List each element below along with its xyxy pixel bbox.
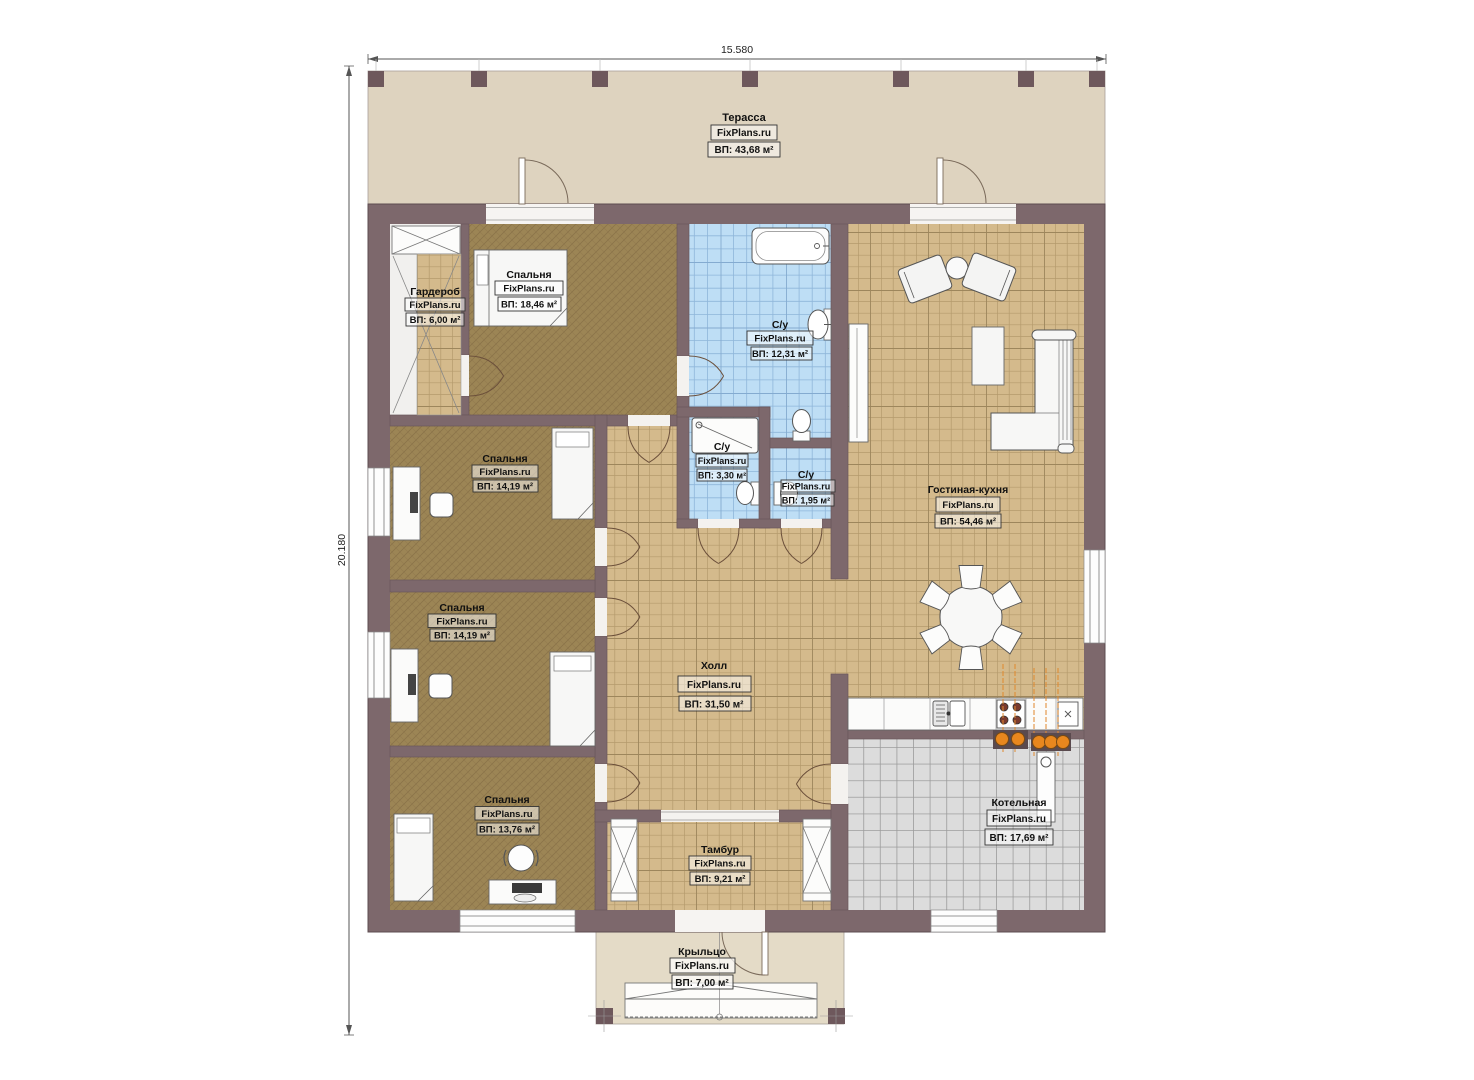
svg-text:FixPlans.ru: FixPlans.ru xyxy=(436,617,487,628)
svg-text:Холл: Холл xyxy=(701,660,727,672)
svg-text:15.580: 15.580 xyxy=(721,44,753,56)
svg-text:Гардероб: Гардероб xyxy=(410,286,460,298)
svg-text:20.180: 20.180 xyxy=(336,534,348,566)
svg-text:FixPlans.ru: FixPlans.ru xyxy=(992,814,1046,825)
svg-text:Гостиная-кухня: Гостиная-кухня xyxy=(928,484,1008,496)
svg-text:ВП: 54,46 м²: ВП: 54,46 м² xyxy=(940,517,996,528)
svg-text:Котельная: Котельная xyxy=(992,797,1047,809)
svg-text:ВП: 3,30 м²: ВП: 3,30 м² xyxy=(698,471,746,481)
svg-text:С/у: С/у xyxy=(798,469,815,481)
svg-text:FixPlans.ru: FixPlans.ru xyxy=(782,482,831,492)
svg-text:ВП: 14,19 м²: ВП: 14,19 м² xyxy=(477,482,533,493)
svg-text:FixPlans.ru: FixPlans.ru xyxy=(942,500,993,511)
svg-text:ВП: 7,00 м²: ВП: 7,00 м² xyxy=(675,978,729,989)
svg-text:С/у: С/у xyxy=(772,319,789,331)
svg-text:FixPlans.ru: FixPlans.ru xyxy=(503,284,554,295)
svg-text:Тамбур: Тамбур xyxy=(701,844,739,856)
svg-text:ВП: 12,31 м²: ВП: 12,31 м² xyxy=(752,349,808,360)
svg-text:FixPlans.ru: FixPlans.ru xyxy=(687,680,741,691)
svg-text:FixPlans.ru: FixPlans.ru xyxy=(481,809,532,820)
svg-text:Спальня: Спальня xyxy=(506,269,551,281)
svg-text:ВП: 31,50 м²: ВП: 31,50 м² xyxy=(684,700,744,711)
svg-text:ВП: 43,68 м²: ВП: 43,68 м² xyxy=(714,145,774,156)
svg-text:ВП: 1,95 м²: ВП: 1,95 м² xyxy=(782,496,830,506)
svg-text:Спальня: Спальня xyxy=(439,602,484,614)
svg-text:FixPlans.ru: FixPlans.ru xyxy=(694,859,745,870)
svg-text:ВП: 17,69 м²: ВП: 17,69 м² xyxy=(989,833,1049,844)
svg-text:ВП: 13,76 м²: ВП: 13,76 м² xyxy=(479,825,535,836)
svg-text:FixPlans.ru: FixPlans.ru xyxy=(717,128,771,139)
svg-text:Терасса: Терасса xyxy=(722,112,766,124)
svg-text:ВП: 6,00 м²: ВП: 6,00 м² xyxy=(410,315,461,326)
svg-text:Спальня: Спальня xyxy=(484,794,529,806)
svg-text:Спальня: Спальня xyxy=(482,453,527,465)
svg-text:FixPlans.ru: FixPlans.ru xyxy=(409,300,460,311)
svg-text:FixPlans.ru: FixPlans.ru xyxy=(754,334,805,345)
svg-text:ВП: 18,46 м²: ВП: 18,46 м² xyxy=(501,300,557,311)
svg-text:ВП: 9,21 м²: ВП: 9,21 м² xyxy=(695,874,746,885)
svg-text:FixPlans.ru: FixPlans.ru xyxy=(698,456,747,466)
svg-text:FixPlans.ru: FixPlans.ru xyxy=(479,467,530,478)
svg-text:ВП: 14,19 м²: ВП: 14,19 м² xyxy=(434,631,490,642)
svg-text:FixPlans.ru: FixPlans.ru xyxy=(675,961,729,972)
svg-text:Крыльцо: Крыльцо xyxy=(678,946,726,958)
svg-text:С/у: С/у xyxy=(714,441,731,453)
